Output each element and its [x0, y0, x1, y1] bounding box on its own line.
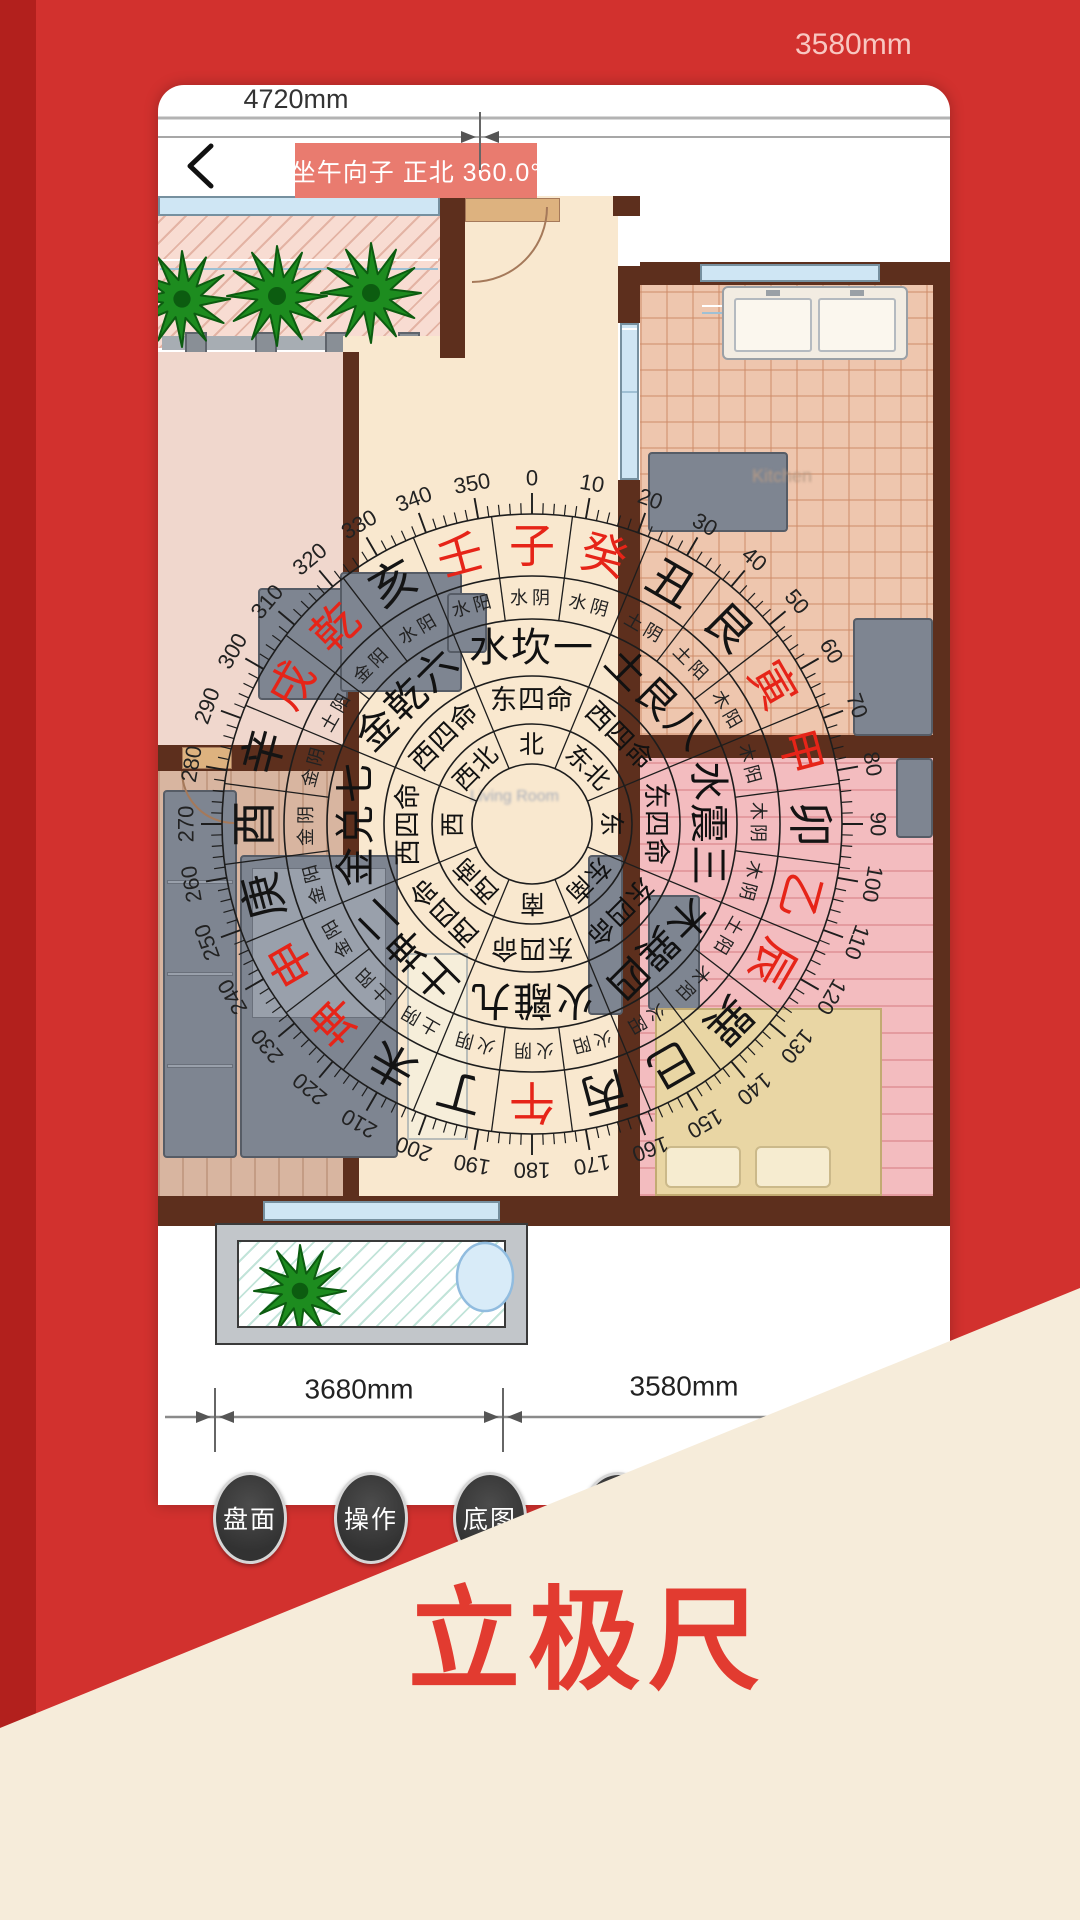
window-kitchen-left — [620, 323, 639, 480]
kitchen-counter — [853, 618, 933, 736]
pillow — [755, 1146, 831, 1188]
wall — [613, 196, 640, 216]
wardrobe-divider — [167, 972, 233, 976]
window-top-left — [158, 196, 440, 216]
wall — [618, 480, 640, 1196]
cabinet-living — [588, 855, 623, 1015]
sink-basin — [818, 298, 896, 352]
faucet-icon — [850, 290, 864, 296]
dimension-overflow-label: 3580mm — [795, 28, 912, 62]
rug — [407, 953, 468, 1140]
pan-surface-button[interactable]: 盘面 — [213, 1472, 287, 1564]
window-living-bottom — [263, 1201, 500, 1221]
fence-post — [185, 332, 207, 354]
app-name-watermark: 立极尺 — [408, 1550, 768, 1712]
dining-set — [340, 572, 462, 692]
cabinet-bedroom — [648, 895, 700, 1010]
door-bedroom-left — [182, 747, 232, 769]
window-kitchen-top — [700, 264, 880, 282]
sink-basin — [734, 298, 812, 352]
orientation-status-badge: 坐午向子 正北 360.0° — [295, 143, 537, 198]
left-accent-strip — [0, 0, 36, 1920]
pillow — [665, 1146, 741, 1188]
wall — [640, 735, 933, 758]
wall — [440, 196, 465, 358]
fence-post — [255, 332, 277, 354]
kitchen-room-label: Kitchen — [752, 466, 812, 487]
living-room-label: Living Room — [470, 788, 559, 806]
wall — [618, 266, 640, 323]
wall — [933, 262, 950, 1226]
side-table — [447, 593, 487, 653]
operate-button[interactable]: 操作 — [334, 1472, 408, 1564]
balcony-floor — [237, 1240, 506, 1328]
wardrobe-divider — [167, 880, 233, 884]
bed-right — [655, 1008, 882, 1196]
kitchen-island — [648, 452, 788, 532]
kitchen-sink — [722, 286, 908, 360]
dining-set — [258, 588, 348, 700]
bed-left-sheet — [252, 868, 386, 1018]
door-entry — [465, 198, 560, 222]
faucet-icon — [766, 290, 780, 296]
wardrobe-divider — [167, 1064, 233, 1068]
exterior-gap — [640, 196, 933, 262]
room-garden-balcony — [158, 200, 440, 348]
nightstand — [896, 758, 933, 838]
